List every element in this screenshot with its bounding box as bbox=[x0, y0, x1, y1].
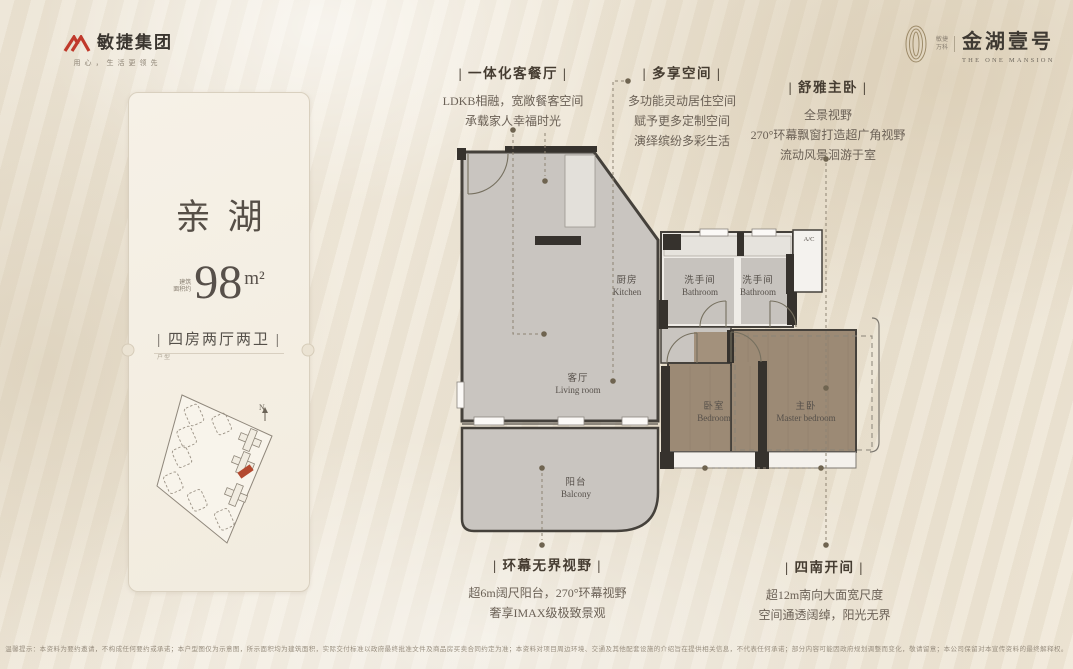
master-floor bbox=[731, 330, 856, 452]
doors bbox=[468, 154, 796, 363]
room-label-kitchen: 厨房Kitchen bbox=[582, 272, 672, 297]
unit-layout: | 四房两厅两卫 | bbox=[129, 328, 309, 349]
room-label-ac: A/C bbox=[792, 236, 826, 243]
project-logo-tag: 敏捷 万科 bbox=[936, 36, 955, 52]
hallway bbox=[661, 327, 731, 363]
project-name: 金湖壹号 bbox=[962, 25, 1055, 54]
annotation-dining: | 一体化客餐厅 | LDKB相融，宽敞餐客空间 承载家人幸福时光 bbox=[423, 62, 603, 131]
bay-sill bbox=[663, 452, 856, 468]
project-tag-line1: 敏捷 bbox=[936, 36, 948, 44]
project-tag-line2: 万科 bbox=[936, 44, 948, 52]
poster: 敏捷集团 用心，生活更领先 敏捷 万科 金湖壹号 THE ONE MANSION… bbox=[0, 0, 1073, 669]
project-logo-icon bbox=[903, 24, 929, 64]
disclaimer: 温馨提示：本资料为要约邀请，不构成任何要约或承诺；本户型图仅为示意图，所示面积均… bbox=[0, 643, 1073, 653]
area-value: 98 bbox=[194, 262, 242, 304]
bay-window-outline bbox=[735, 336, 872, 450]
developer-logo-icon bbox=[62, 35, 92, 53]
developer-name: 敏捷集团 bbox=[97, 28, 173, 53]
annotation-south-bays: | 四南开间 | 超12m南向大面宽尺度 空间通透阔绰，阳光无界 bbox=[732, 556, 917, 625]
annotation-title: | 环幕无界视野 | bbox=[455, 554, 640, 574]
area-unit: m² bbox=[244, 268, 264, 290]
area-prefix: 建筑 面积约 bbox=[173, 280, 191, 294]
room-label-master: 主卧Master bedroom bbox=[761, 398, 851, 423]
annotation-master: | 舒雅主卧 | 全景视野 270°环幕飘窗打造超广角视野 流动风景洄游于室 bbox=[738, 76, 918, 165]
room-label-bathroom-2: 洗手间Bathroom bbox=[723, 272, 793, 297]
unit-area: 建筑 面积约 98 m² bbox=[129, 262, 309, 304]
unit-name: 亲湖 bbox=[129, 189, 309, 240]
room-label-living: 客厅Living room bbox=[533, 370, 623, 395]
annotation-balcony: | 环幕无界视野 | 超6m阔尺阳台，270°环幕视野 奢享IMAX级极致景观 bbox=[455, 554, 640, 623]
developer-logo: 敏捷集团 用心，生活更领先 bbox=[62, 28, 173, 68]
unit-card: 亲湖 建筑 面积约 98 m² | 四房两厅两卫 | 户型 bbox=[128, 92, 310, 592]
room-label-balcony: 阳台Balcony bbox=[531, 474, 621, 499]
project-subtitle: THE ONE MANSION bbox=[962, 57, 1055, 64]
annotation-title: | 一体化客餐厅 | bbox=[423, 62, 603, 82]
project-logo: 敏捷 万科 金湖壹号 THE ONE MANSION bbox=[903, 24, 1055, 64]
card-divider bbox=[154, 353, 284, 354]
windows bbox=[457, 229, 776, 425]
annotation-title: | 舒雅主卧 | bbox=[738, 76, 918, 96]
developer-slogan: 用心，生活更领先 bbox=[62, 58, 173, 68]
annotation-title: | 四南开间 | bbox=[732, 556, 917, 576]
closet bbox=[565, 155, 595, 227]
room-label-bedroom: 卧室Bedroom bbox=[669, 398, 759, 423]
